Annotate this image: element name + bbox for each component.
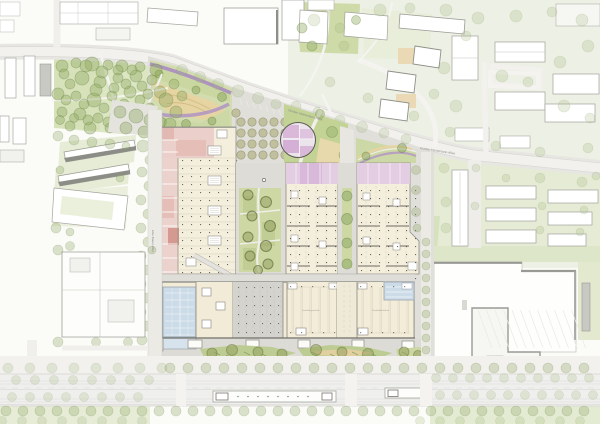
- svg-text:Else-Bauer-Weg: Else-Bauer-Weg: [151, 230, 155, 252]
- svg-text:Stadtteilbibliothek: Stadtteilbibliothek: [372, 309, 390, 312]
- svg-text:Zweifeldsporthalle: Zweifeldsporthalle: [302, 309, 320, 312]
